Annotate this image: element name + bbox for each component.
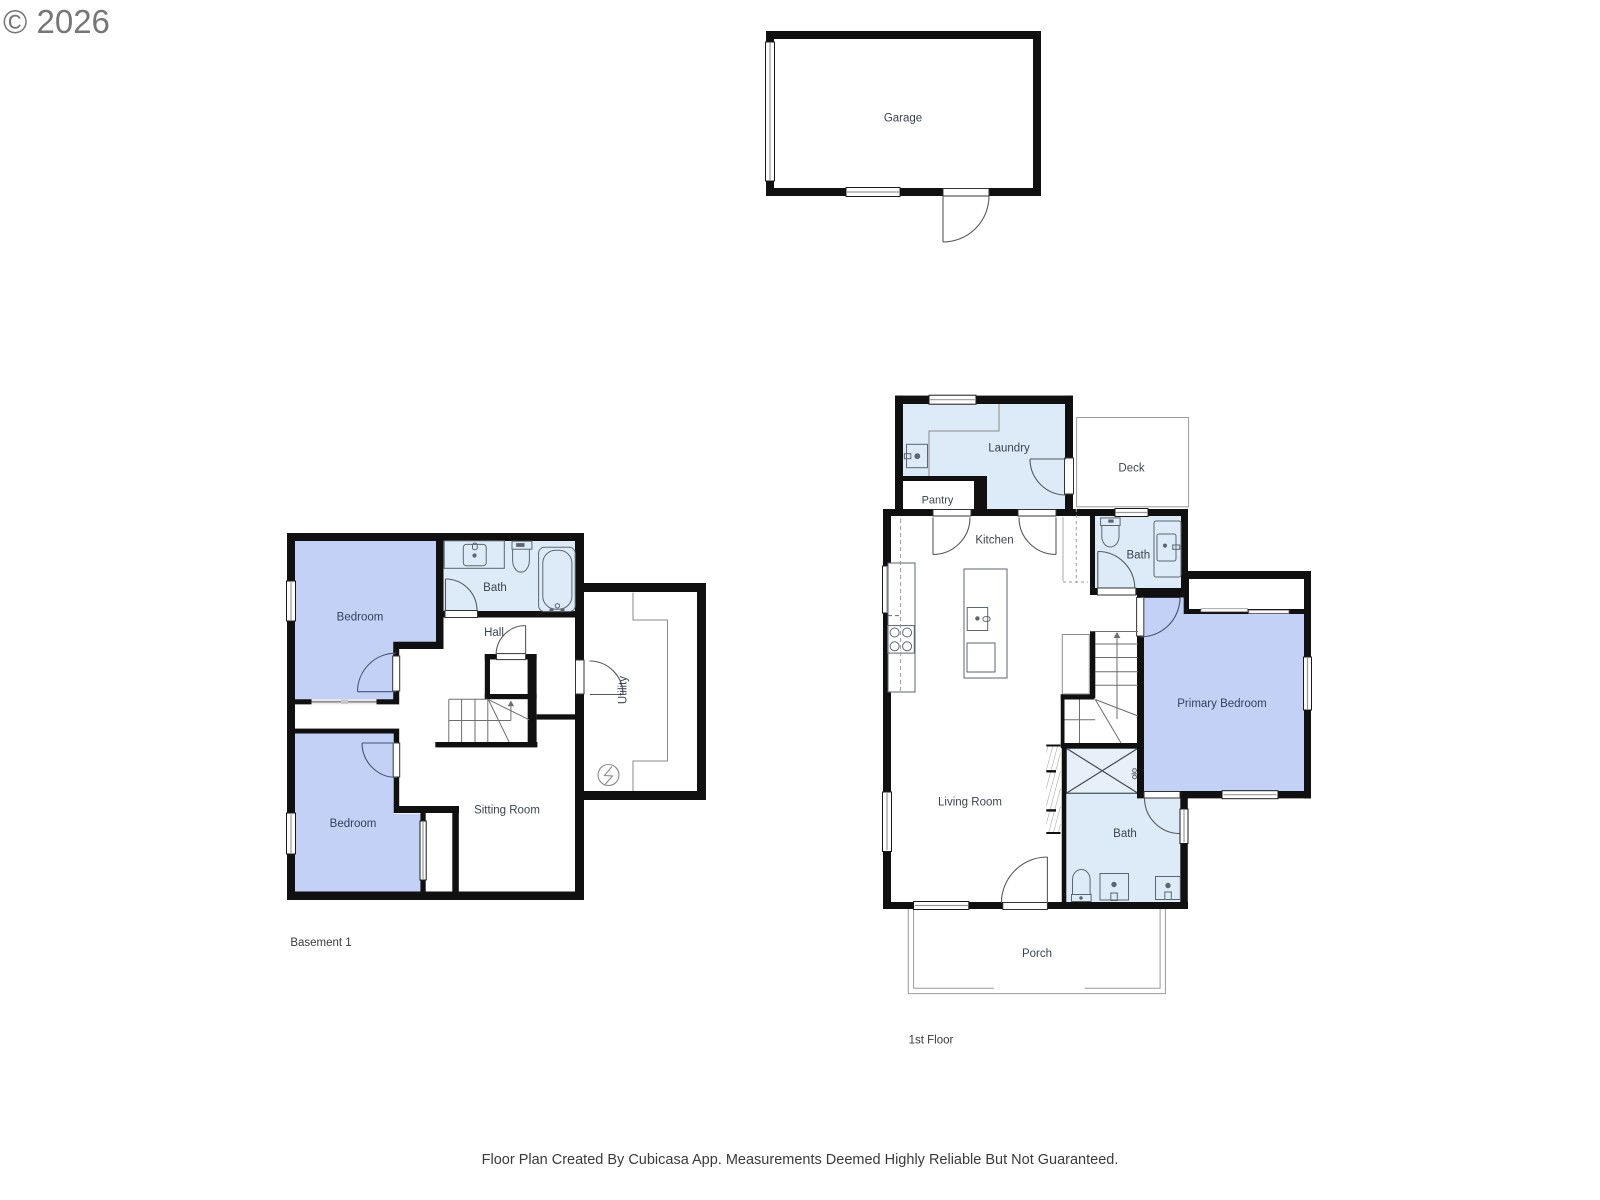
svg-text:Porch: Porch xyxy=(1022,948,1052,960)
svg-text:Kitchen: Kitchen xyxy=(975,535,1013,547)
svg-text:Laundry: Laundry xyxy=(988,443,1030,455)
svg-text:Bedroom: Bedroom xyxy=(337,612,384,624)
svg-text:Bath: Bath xyxy=(483,582,507,594)
svg-text:© 2026: © 2026 xyxy=(3,3,110,40)
svg-text:Sitting Room: Sitting Room xyxy=(474,805,540,817)
svg-text:Bath: Bath xyxy=(1126,550,1150,562)
svg-text:Primary Bedroom: Primary Bedroom xyxy=(1177,698,1266,710)
svg-text:1st Floor: 1st Floor xyxy=(909,1035,954,1047)
svg-text:Deck: Deck xyxy=(1118,463,1144,475)
svg-text:Hall: Hall xyxy=(484,627,504,639)
svg-text:Garage: Garage xyxy=(884,113,922,125)
svg-text:Bath: Bath xyxy=(1113,828,1137,840)
svg-text:Pantry: Pantry xyxy=(922,495,954,507)
svg-text:Floor Plan Created By Cubicasa: Floor Plan Created By Cubicasa App. Meas… xyxy=(482,1152,1119,1168)
svg-text:Bedroom: Bedroom xyxy=(330,818,377,830)
svg-text:Living Room: Living Room xyxy=(938,797,1002,809)
svg-text:Basement 1: Basement 1 xyxy=(290,937,351,949)
svg-text:Utility: Utility xyxy=(618,676,630,704)
